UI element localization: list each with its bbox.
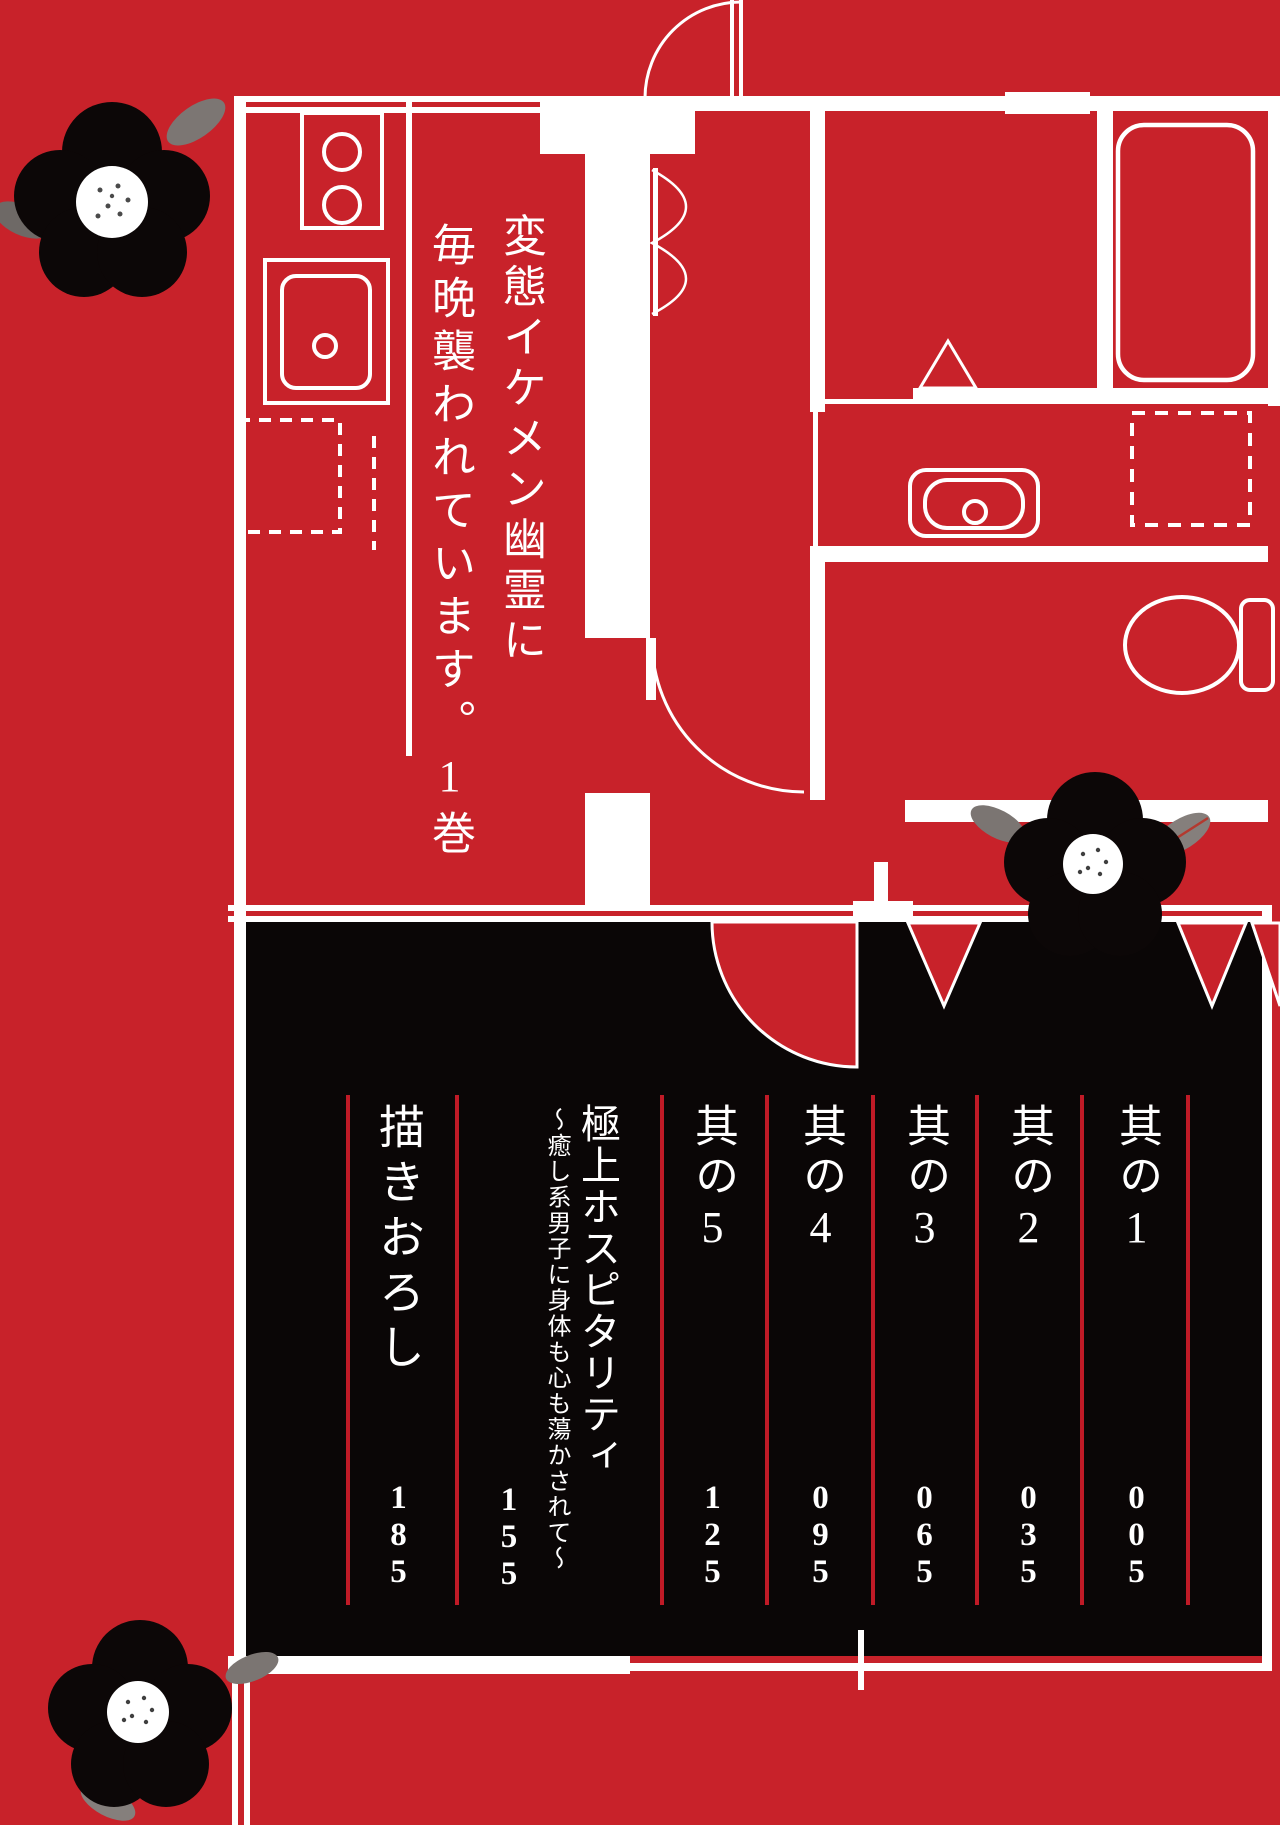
laundry-dashed-outline (1132, 413, 1250, 525)
stove-icon (302, 113, 382, 228)
book-title-line-1: 変態イケメン幽霊に (498, 213, 542, 668)
toc-separator-line (1080, 1095, 1084, 1605)
toc-entry-subtitle: ～癒し系男子に身体も心も蕩かされて～ (544, 1107, 568, 1571)
bathtub-icon (1118, 125, 1253, 380)
toc-entry-label: 其の1 (1114, 1103, 1158, 1258)
toc-separator-line (346, 1095, 350, 1605)
toc-entry-label: 其の4 (798, 1103, 842, 1258)
toc-entry-label: 其の2 (1006, 1103, 1050, 1258)
toc-separator-line (660, 1095, 664, 1605)
toc-entry-label: 其の5 (690, 1103, 734, 1258)
toc-entry-1: 其の1 005 (1113, 1103, 1159, 1633)
toilet-icon (1125, 597, 1273, 693)
toc-entry-label: 描きおろし (375, 1103, 421, 1378)
toc-separator-line (871, 1095, 875, 1605)
toc-entry-page: 005 (1120, 1480, 1153, 1591)
shower-door-triangle-icon (920, 341, 976, 388)
toc-separator-line (975, 1095, 979, 1605)
toc-separator-line (765, 1095, 769, 1605)
toc-entry-label: 其の3 (902, 1103, 946, 1258)
toc-entry-page: 035 (1012, 1480, 1045, 1591)
toc-entry-page: 065 (908, 1480, 941, 1591)
toc-entry-label: 極上ホスピタリティ (577, 1103, 617, 1477)
toc-entry-5: 其の5 125 (689, 1103, 735, 1633)
toc-entry-7: 描きおろし 185 (375, 1103, 421, 1633)
toc-entry-page: 155 (492, 1482, 525, 1593)
toc-entry-3: 其の3 065 (901, 1103, 947, 1633)
book-title-line-2: 毎晩襲われています。1巻 (427, 222, 471, 863)
toc-entry-4: 其の4 095 (797, 1103, 843, 1633)
toc-separator-line (455, 1095, 459, 1605)
entrance-door-arc-icon (645, 2, 741, 98)
toc-separator-line (1186, 1095, 1190, 1605)
fridge-dashed-outline (238, 420, 374, 550)
apartment-floor-plan (0, 0, 1280, 1825)
toc-entry-2: 其の2 035 (1005, 1103, 1051, 1633)
manga-toc-page: 変態イケメン幽霊に 毎晩襲われています。1巻 其の1 005 其の2 035 其… (0, 0, 1280, 1825)
washbasin-icon (910, 470, 1038, 536)
kitchen-sink-icon (265, 260, 388, 403)
toc-entry-page: 125 (696, 1480, 729, 1591)
room-door-arc-icon (646, 638, 804, 792)
toc-entry-page: 095 (804, 1480, 837, 1591)
camellia-flower-icon (0, 89, 233, 297)
toc-entry-6: 極上ホスピタリティ ～癒し系男子に身体も心も蕩かされて～ 155 (480, 1103, 630, 1633)
door-swing-icon (712, 922, 857, 1067)
toc-entry-page: 185 (382, 1480, 415, 1591)
closet-door-icon (652, 168, 686, 316)
